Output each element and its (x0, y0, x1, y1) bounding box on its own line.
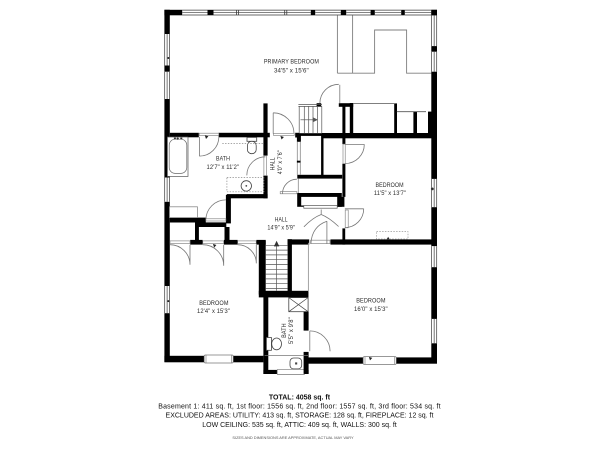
svg-text:LOW CEILING: 535 sq. ft, ATTIC: LOW CEILING: 535 sq. ft, ATTIC: 409 sq. … (202, 422, 397, 429)
svg-text:16'0" x 15'3": 16'0" x 15'3" (354, 306, 388, 313)
svg-text:BATH: BATH (281, 323, 288, 338)
svg-text:SIZES AND DIMENSIONS ARE APPRO: SIZES AND DIMENSIONS ARE APPROXIMATE, AC… (232, 435, 354, 440)
svg-text:4'0" x 7'6": 4'0" x 7'6" (277, 150, 284, 174)
svg-text:14'9" x 5'9": 14'9" x 5'9" (267, 224, 295, 231)
svg-text:HALL: HALL (275, 216, 288, 223)
svg-text:5'5" x 9'8": 5'5" x 9'8" (288, 317, 295, 344)
svg-text:BEDROOM: BEDROOM (376, 182, 404, 189)
svg-text:BATH: BATH (216, 155, 230, 162)
svg-text:12'7" x 11'2": 12'7" x 11'2" (207, 164, 240, 171)
svg-text:12'4" x 15'3": 12'4" x 15'3" (197, 308, 230, 315)
svg-text:EXCLUDED AREAS: UTILITY: 413 s: EXCLUDED AREAS: UTILITY: 413 sq. ft, STO… (166, 413, 434, 420)
svg-text:Basement 1: 411 sq. ft, 1st fl: Basement 1: 411 sq. ft, 1st floor: 1556 … (158, 404, 441, 411)
svg-text:11'5" x 13'7": 11'5" x 13'7" (374, 190, 407, 197)
svg-text:TOTAL: 4058 sq. ft: TOTAL: 4058 sq. ft (269, 395, 331, 402)
svg-text:HALL: HALL (270, 157, 277, 170)
svg-text:BEDROOM: BEDROOM (356, 298, 386, 305)
svg-text:PRIMARY BEDROOM: PRIMARY BEDROOM (264, 59, 319, 66)
svg-text:BEDROOM: BEDROOM (199, 300, 229, 307)
svg-text:34'5" x 15'6": 34'5" x 15'6" (274, 68, 309, 75)
